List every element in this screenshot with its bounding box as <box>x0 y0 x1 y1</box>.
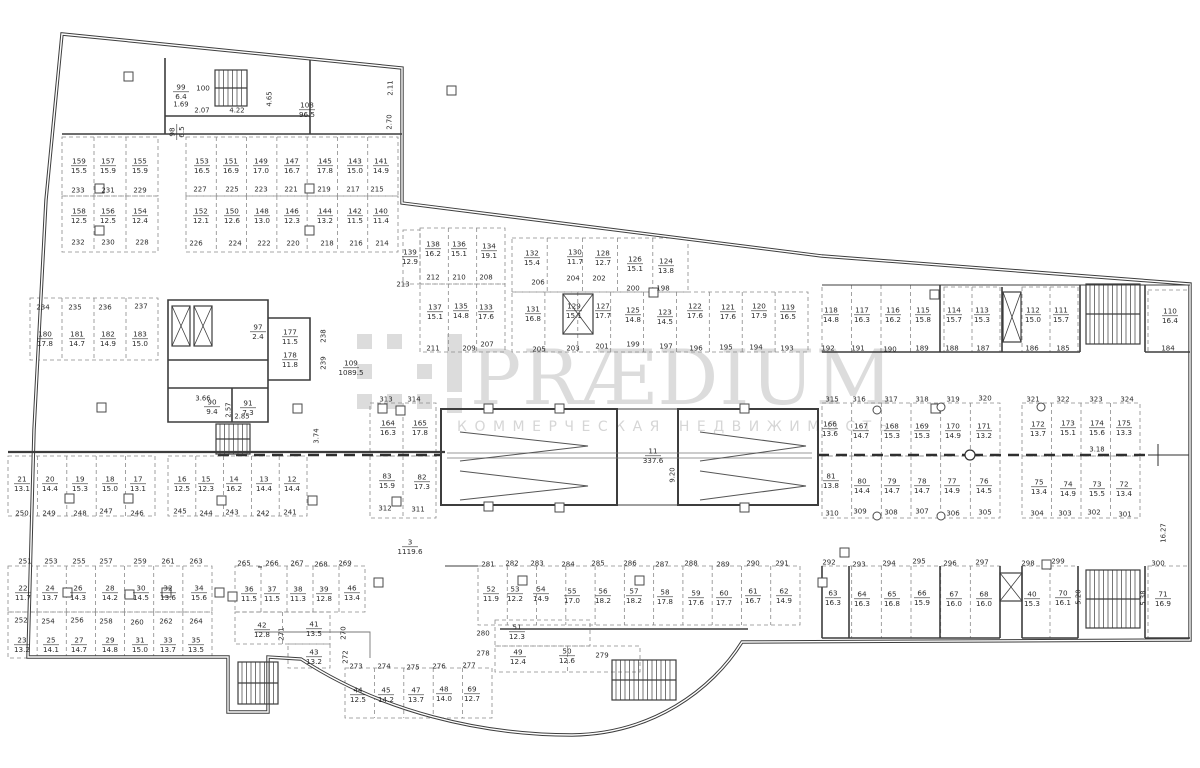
room-label: 3213.6 <box>160 584 176 603</box>
room-label: 16613.6 <box>822 420 838 439</box>
room-label: 4613.4 <box>344 584 360 603</box>
room-number: 52 <box>486 585 495 594</box>
column-marker <box>378 404 387 413</box>
room-area: 15.6 <box>191 593 207 602</box>
stall-tag: 268 <box>314 561 327 569</box>
room-number: 152 <box>194 207 208 216</box>
room-label: 11916.5 <box>780 303 796 322</box>
stall-tag-text: 305 <box>978 509 991 517</box>
room-area: 13.7 <box>160 645 176 654</box>
column-marker <box>555 404 564 413</box>
stall-tag-text: 299 <box>1051 558 1064 566</box>
room-label: 5312.2 <box>507 585 523 604</box>
room-number: 37 <box>267 585 276 594</box>
dimension-text: 5.38 <box>1140 590 1148 605</box>
room-number: 64 <box>857 590 867 599</box>
room-area: 16.2 <box>226 484 242 493</box>
room-label: 972.4 <box>250 323 266 342</box>
stall-tag-text: 190 <box>883 346 896 354</box>
stall-tag-text: 231 <box>101 187 114 195</box>
column-marker <box>305 184 314 193</box>
column-marker <box>447 86 456 95</box>
room-number: 34 <box>194 584 204 593</box>
stall-tag: 306 <box>946 510 960 518</box>
room-area: 15.1 <box>1060 428 1076 437</box>
room-area: 14.5 <box>657 317 673 326</box>
room-number: 51 <box>512 623 521 632</box>
room-label: 3415.6 <box>191 584 207 603</box>
stall-tag-text: 191 <box>851 345 864 353</box>
room-number: 113 <box>975 306 989 315</box>
room-area: 9.4 <box>206 407 218 416</box>
room-number: 21 <box>17 475 26 484</box>
column-marker <box>374 578 383 587</box>
stall-tag: 184 <box>1161 345 1175 353</box>
room-label: 13011.7 <box>567 248 583 267</box>
room-label: 4015.3 <box>1024 590 1040 609</box>
room-area: 14.4 <box>854 486 870 495</box>
stall-tag: 283 <box>530 560 543 568</box>
room-number: 180 <box>38 330 52 339</box>
stall-tag-text: 184 <box>1161 345 1175 353</box>
room-area: 13.5 <box>306 629 322 638</box>
room-number: 42 <box>257 621 266 630</box>
stall-tag: 269 <box>338 560 351 568</box>
room-area: 11.5 <box>264 594 280 603</box>
stall-tag: 244 <box>199 510 213 518</box>
stall-tag-text: 286 <box>623 560 637 568</box>
room-area: 17.7 <box>595 311 611 320</box>
room-number: 19 <box>75 475 85 484</box>
room-label: 12314.5 <box>657 308 673 327</box>
room-number: 69 <box>467 685 477 694</box>
room-area: 15.9 <box>100 166 116 175</box>
stall-tag: 265 <box>237 560 250 568</box>
room-area: 12.3 <box>198 484 214 493</box>
stall-tag-text: 317 <box>884 396 897 404</box>
room-label: 17711.5 <box>282 328 298 347</box>
stall-tag: 228 <box>135 239 148 247</box>
room-label: 5618.2 <box>595 587 611 606</box>
stall-tag-text: 194 <box>749 344 763 352</box>
stall-tag: 239 <box>320 356 328 369</box>
room-area: 17.6 <box>687 311 703 320</box>
room-label: 5517.0 <box>564 587 580 606</box>
room-number: 70 <box>1058 589 1068 598</box>
column-marker <box>818 578 827 587</box>
stall-tag: 270 <box>340 626 348 639</box>
stall-tag: 234 <box>36 304 50 312</box>
stall-tag: 222 <box>257 240 270 248</box>
room-area: 13.1 <box>130 484 146 493</box>
stall-tag-text: 204 <box>566 275 580 283</box>
stall-tag: 314 <box>407 396 421 404</box>
stall-tag-text: 195 <box>719 344 732 352</box>
room-area: 15.3 <box>914 431 930 440</box>
dimension-text: 2.70 <box>386 114 394 129</box>
room-number: 118 <box>824 306 838 315</box>
room-area: 15.7 <box>1053 315 1069 324</box>
stall-tag: 324 <box>1120 396 1134 404</box>
room-number: 80 <box>857 477 867 486</box>
room-label: 7614.5 <box>976 477 992 496</box>
stall-tag-text: 223 <box>254 186 267 194</box>
stall-tag-text: 198 <box>656 285 669 293</box>
room-area: 14.9 <box>100 339 116 348</box>
room-label: 2514.1 <box>43 636 59 655</box>
room-area: 12.5 <box>100 216 116 225</box>
stall-tag-text: 268 <box>314 561 327 569</box>
room-area: 17.9 <box>751 311 767 320</box>
room-label: 14612.3 <box>284 207 300 226</box>
stall-tag-text: 215 <box>370 186 383 194</box>
room-label: 14716.7 <box>284 157 300 176</box>
stall-tag: 238 <box>320 329 328 342</box>
floor-plan-canvas: PRÆDIUM КОММЕРЧЕСКАЯ НЕДВИЖИМОСТЬ <box>0 0 1200 768</box>
dimension-label: 4.22 <box>229 107 244 115</box>
room-area: 14.9 <box>373 166 389 175</box>
room-label: 13317.6 <box>478 303 494 322</box>
room-number: 11 <box>648 447 657 456</box>
room-number: 181 <box>70 330 84 339</box>
room-area: 12.5 <box>174 484 190 493</box>
stall-tag: 294 <box>882 560 896 568</box>
stall-tag: 308 <box>884 509 897 517</box>
room-area: 14.7 <box>69 339 85 348</box>
room-label: 13215.4 <box>524 249 540 268</box>
stall-tag-text: 202 <box>592 275 605 283</box>
stall-tag-text: 275 <box>406 664 419 672</box>
stall-tag: 259 <box>133 558 146 566</box>
room-number: 145 <box>318 157 332 166</box>
room-number: 17 <box>133 475 142 484</box>
stall-tag-text: 213 <box>396 281 409 289</box>
room-label: 7914.7 <box>884 477 900 496</box>
stall-tag-text: 249 <box>42 510 55 518</box>
stall-tag: 303 <box>1058 510 1071 518</box>
stall-tag-text: 219 <box>317 186 330 194</box>
column-marker <box>396 406 405 415</box>
room-number: 71 <box>1158 590 1167 599</box>
room-label: 11616.2 <box>885 306 901 325</box>
stall-tag-text: 237 <box>134 303 147 311</box>
room-area: 12.6 <box>559 656 575 665</box>
room-label: 17315.1 <box>1060 419 1076 438</box>
room-number: 172 <box>1031 420 1045 429</box>
ramp-arrows <box>460 432 806 500</box>
stall-tag-text: 266 <box>265 560 279 568</box>
room-label: 986.5 <box>168 124 187 140</box>
stall-tag: 207 <box>480 341 493 349</box>
stall-tag-text: 307 <box>915 508 928 516</box>
stall-tag: 199 <box>626 341 639 349</box>
room-area: 16.2 <box>425 249 441 258</box>
stall-tag: 203 <box>566 345 579 353</box>
room-area: 15.9 <box>132 166 148 175</box>
stall-tag-text: 288 <box>684 560 697 568</box>
room-number: 182 <box>101 330 115 339</box>
stall-tag-text: 187 <box>976 345 989 353</box>
stall-tag-text: 250 <box>15 510 28 518</box>
room-area: 11.7 <box>15 593 31 602</box>
stall-tag: 193 <box>780 345 793 353</box>
stall-tag: 289 <box>716 561 729 569</box>
room-number: 68 <box>979 590 989 599</box>
room-label: 13419.1 <box>481 242 497 261</box>
room-label: 13615.1 <box>451 240 467 259</box>
room-area: 12.9 <box>402 257 418 266</box>
room-label: 5414.9 <box>533 585 549 604</box>
room-label: 2714.7 <box>71 636 87 655</box>
room-area: 15.9 <box>914 598 930 607</box>
room-number: 178 <box>283 351 297 360</box>
room-area: 14.4 <box>256 484 272 493</box>
stall-tag: 224 <box>228 240 242 248</box>
room-area: 16.7 <box>745 596 761 605</box>
room-label: 4514.2 <box>378 686 394 705</box>
room-number: 76 <box>979 477 989 486</box>
room-area: 11.4 <box>373 216 389 225</box>
stall-tag: 263 <box>189 558 202 566</box>
room-label: 7414.9 <box>1060 480 1076 499</box>
stall-tag: 198 <box>656 285 669 293</box>
room-label: 13715.1 <box>427 303 443 322</box>
room-area: 13.1 <box>14 484 30 493</box>
stall-tag: 218 <box>320 240 333 248</box>
stall-tag-text: 220 <box>286 240 299 248</box>
room-number: 75 <box>1034 478 1043 487</box>
stall-tag: 231 <box>101 187 114 195</box>
stall-tag-text: 229 <box>133 187 146 195</box>
room-number: 125 <box>626 306 640 315</box>
room-area: 12.1 <box>193 216 209 225</box>
room-area: 17.6 <box>720 312 736 321</box>
room-number: 59 <box>691 589 701 598</box>
stall-tag-text: 235 <box>68 304 81 312</box>
column-marker <box>555 503 564 512</box>
column-marker <box>392 497 401 506</box>
stall-tag: 208 <box>479 274 492 282</box>
dimension-text: 2.07 <box>194 107 209 115</box>
room-number: 110 <box>1163 307 1177 316</box>
room-number: 116 <box>886 306 900 315</box>
stall-tag-text: 306 <box>946 510 960 518</box>
dimension-label: 2.57 <box>225 402 233 417</box>
stall-tag: 221 <box>284 186 297 194</box>
room-area: 13.2 <box>306 657 322 666</box>
room-area: 15.0 <box>1025 315 1041 324</box>
room-label: 5718.2 <box>626 587 642 606</box>
room-label: 14114.9 <box>373 157 389 176</box>
room-area: 96.5 <box>299 110 315 119</box>
room-number: 78 <box>917 477 927 486</box>
stall-tag: 264 <box>189 618 203 626</box>
stall-tag-text: 230 <box>101 239 114 247</box>
room-area: 11.5 <box>282 337 298 346</box>
stall-tag: 323 <box>1089 396 1102 404</box>
room-area: 11.7 <box>567 257 583 266</box>
stall-tag: 293 <box>852 561 865 569</box>
room-number: 79 <box>887 477 897 486</box>
stall-tag-text: 265 <box>237 560 250 568</box>
room-number: 128 <box>596 249 610 258</box>
room-area: 16.1 <box>1055 598 1071 607</box>
room-number: 164 <box>381 419 395 428</box>
column-marker <box>484 404 493 413</box>
room-number: 140 <box>374 207 388 216</box>
room-area: 13.2 <box>976 431 992 440</box>
room-label: 16517.8 <box>412 419 428 438</box>
room-area: 14.0 <box>436 694 452 703</box>
room-number: 50 <box>562 647 572 656</box>
room-number: 156 <box>101 207 115 216</box>
room-number: 174 <box>1090 419 1104 428</box>
room-label: 17415.6 <box>1089 419 1105 438</box>
stall-tag-text: 285 <box>591 560 604 568</box>
room-label: 15515.9 <box>132 157 148 176</box>
stall-tag-text: 283 <box>530 560 543 568</box>
room-number: 165 <box>413 419 427 428</box>
stall-tag-text: 293 <box>852 561 865 569</box>
stall-tag: 204 <box>566 275 580 283</box>
column-marker <box>217 496 226 505</box>
room-area: 1089.5 <box>338 368 363 377</box>
room-label: 6816.0 <box>976 590 992 609</box>
room-number: 43 <box>309 648 318 657</box>
room-area: 14.5 <box>976 486 992 495</box>
room-number: 24 <box>45 584 55 593</box>
stall-tag-text: 233 <box>71 187 84 195</box>
stall-tag-text: 208 <box>479 274 492 282</box>
stall-tag: 191 <box>851 345 864 353</box>
stall-tag: 255 <box>72 558 85 566</box>
room-label: 15316.5 <box>194 157 210 176</box>
room-label: 12117.6 <box>720 303 736 322</box>
stall-tag-text: 243 <box>225 509 238 517</box>
room-number: 26 <box>73 584 83 593</box>
column-marker <box>215 588 224 597</box>
room-number: 124 <box>659 257 673 266</box>
stall-tag-text: 222 <box>257 240 270 248</box>
stall-tag-text: 246 <box>130 510 144 518</box>
room-area: 17.0 <box>564 596 580 605</box>
room-number: 25 <box>46 636 55 645</box>
room-area: 17.6 <box>478 312 494 321</box>
stall-tag-text: 264 <box>189 618 203 626</box>
stall-tag-text: 269 <box>338 560 351 568</box>
stall-tag-text: 239 <box>320 356 328 369</box>
stall-tag-text: 228 <box>135 239 148 247</box>
room-label: 11716.3 <box>854 306 870 325</box>
room-area: 12.7 <box>595 258 611 267</box>
room-number: 57 <box>629 587 638 596</box>
room-number: 48 <box>439 685 449 694</box>
room-area: 12.6 <box>224 216 240 225</box>
stall-tag-text: 271 <box>278 627 286 640</box>
stall-tag: 279 <box>595 652 608 660</box>
stall-tag: 301 <box>1118 511 1131 519</box>
room-area: 19.1 <box>481 251 497 260</box>
room-label: 11515.8 <box>915 306 931 325</box>
room-number: 155 <box>133 157 147 166</box>
room-number: 146 <box>285 207 299 216</box>
stall-tag-text: 281 <box>481 561 494 569</box>
room-number: 91 <box>243 399 252 408</box>
dimension-text: 4.65 <box>266 91 274 106</box>
room-label: 7213.4 <box>1116 480 1132 499</box>
dimension-label: 1.69 <box>173 101 188 109</box>
stall-tag-text: 280 <box>476 630 489 638</box>
room-label: 14517.8 <box>317 157 333 176</box>
room-label: 15715.9 <box>100 157 116 176</box>
room-label: 3611.5 <box>241 585 257 604</box>
room-area: 16.3 <box>380 428 396 437</box>
room-area: 16.3 <box>854 599 870 608</box>
room-area: 14.7 <box>853 431 869 440</box>
stall-tag: 320 <box>978 395 991 403</box>
room-label: 5012.6 <box>559 647 575 666</box>
stall-tag-text: 196 <box>689 345 703 353</box>
dimension-label: 5.38 <box>1140 590 1148 605</box>
column-marker <box>740 503 749 512</box>
room-label: 8217.3 <box>414 473 430 492</box>
room-label: 18315.0 <box>132 330 148 349</box>
stall-tag-text: 209 <box>462 345 475 353</box>
stall-tag: 307 <box>915 508 928 516</box>
room-area: 17.8 <box>412 428 428 437</box>
room-number: 133 <box>479 303 493 312</box>
room-label: 16915.3 <box>914 422 930 441</box>
room-number: 74 <box>1063 480 1073 489</box>
room-label: 16416.3 <box>380 419 396 438</box>
stall-tag: 302 <box>1087 509 1100 517</box>
room-label: 11337.6 <box>643 447 664 466</box>
room-number: 60 <box>719 589 729 598</box>
room-number: 20 <box>45 475 55 484</box>
stall-tag-text: 316 <box>852 396 866 404</box>
room-number: 134 <box>482 242 496 251</box>
room-area: 12.4 <box>510 657 526 666</box>
stall-tag-text: 211 <box>426 345 439 353</box>
stall-tag-text: 238 <box>320 329 328 342</box>
room-number: 23 <box>17 636 26 645</box>
room-label: 12717.7 <box>595 302 611 321</box>
room-label: 10896.5 <box>299 101 315 120</box>
column-marker <box>740 404 749 413</box>
room-area: 12.4 <box>132 216 148 225</box>
room-area: 15.3 <box>72 484 88 493</box>
room-label: 15012.6 <box>224 207 240 226</box>
stall-tag: 209 <box>462 345 475 353</box>
stall-tag-text: 278 <box>476 650 489 658</box>
room-area: 16.9 <box>1155 599 1171 608</box>
room-label: 2914.8 <box>102 636 118 655</box>
room-number: 97 <box>253 323 262 332</box>
room-label: 6214.9 <box>776 587 792 606</box>
room-area: 16.0 <box>976 599 992 608</box>
stall-tag: 241 <box>283 509 296 517</box>
stall-tag: 201 <box>595 343 608 351</box>
room-label: 7016.1 <box>1055 589 1071 608</box>
room-area: 14.3 <box>70 593 86 602</box>
room-area: 17.6 <box>688 598 704 607</box>
stall-tag: 313 <box>379 396 392 404</box>
room-area: 14.5 <box>133 593 149 602</box>
room-label: 7513.4 <box>1031 478 1047 497</box>
stall-tag: 254 <box>41 618 55 626</box>
room-number: 98 <box>168 127 177 137</box>
room-number: 35 <box>191 636 200 645</box>
